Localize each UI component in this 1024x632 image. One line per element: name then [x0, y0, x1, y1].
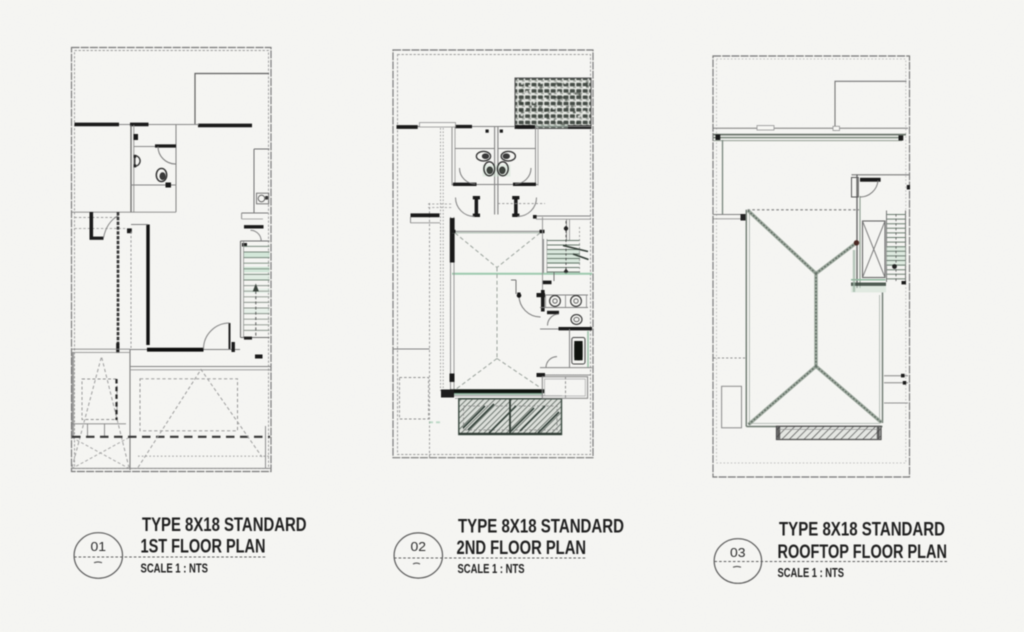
svg-text:TYPE 8X18 STANDARD: TYPE 8X18 STANDARD	[142, 514, 307, 536]
svg-text:TYPE 8X18 STANDARD: TYPE 8X18 STANDARD	[458, 516, 624, 538]
svg-text:SCALE 1 : NTS: SCALE 1 : NTS	[458, 561, 525, 576]
svg-text:03: 03	[730, 545, 746, 560]
svg-text:1ST FLOOR PLAN: 1ST FLOOR PLAN	[141, 536, 266, 558]
svg-text:SCALE 1 : NTS: SCALE 1 : NTS	[141, 561, 209, 576]
svg-text:ROOFTOP FLOOR PLAN: ROOFTOP FLOOR PLAN	[778, 541, 948, 563]
svg-text:TYPE 8X18 STANDARD: TYPE 8X18 STANDARD	[779, 519, 945, 541]
svg-text:02: 02	[411, 539, 427, 554]
svg-text:01: 01	[91, 539, 107, 554]
svg-text:2ND FLOOR PLAN: 2ND FLOOR PLAN	[457, 537, 587, 559]
svg-text:SCALE 1 : NTS: SCALE 1 : NTS	[778, 565, 845, 580]
